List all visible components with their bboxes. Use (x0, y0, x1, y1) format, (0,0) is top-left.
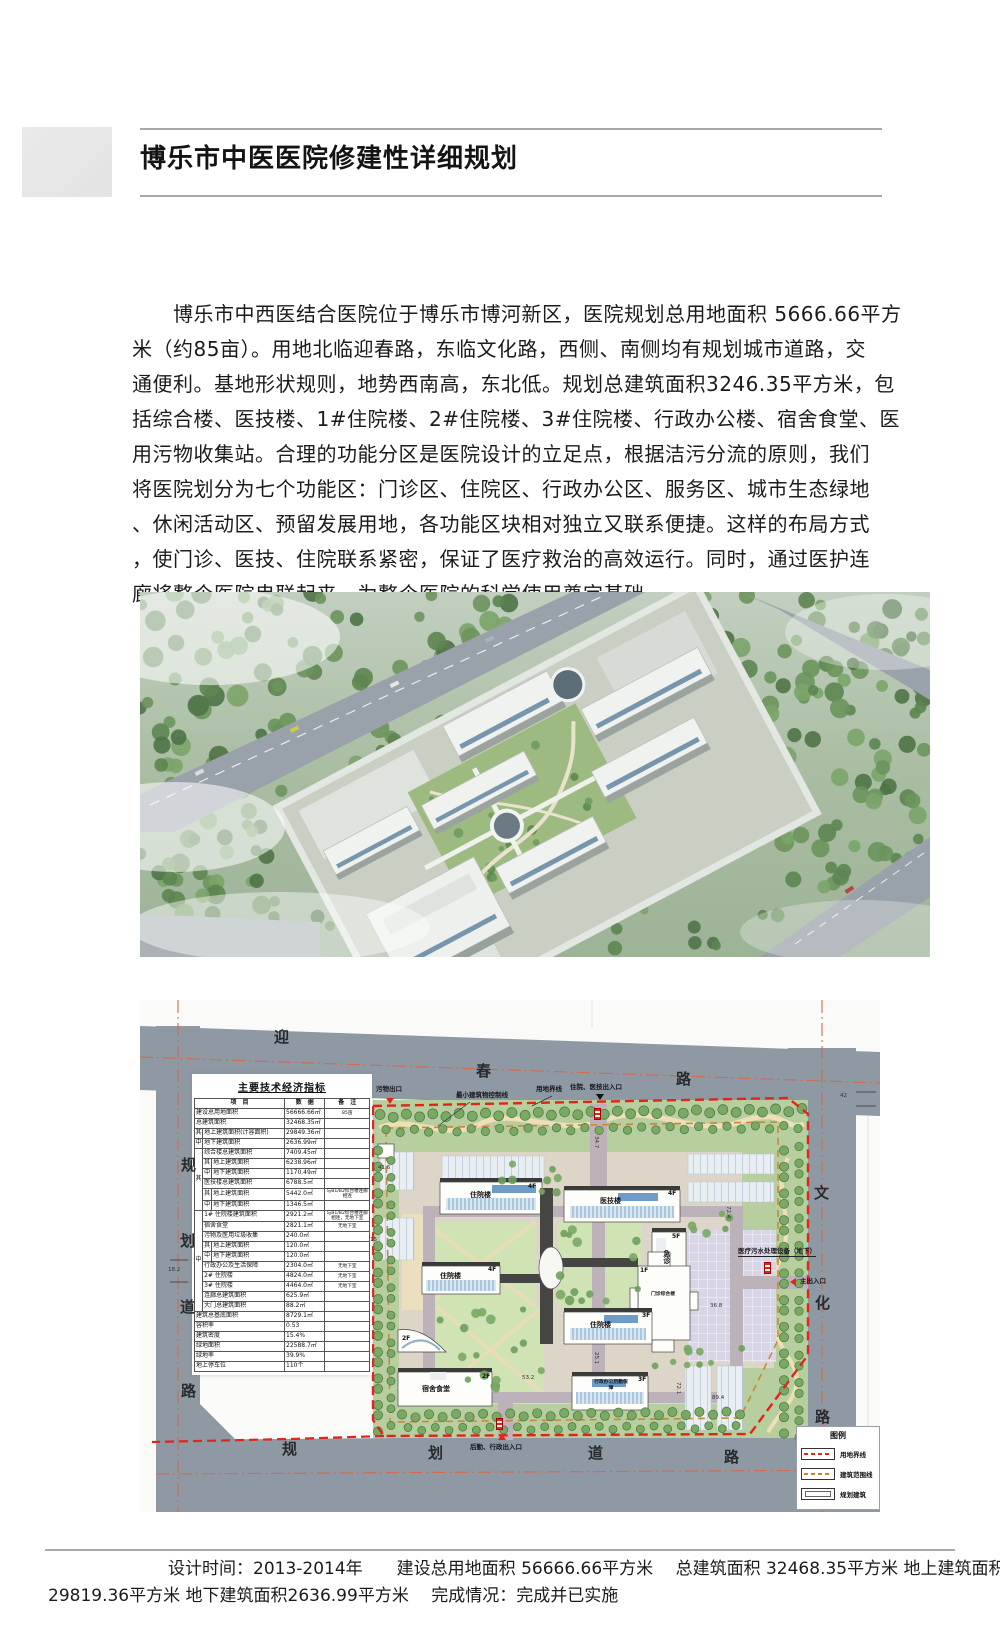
indicator-cell: 29849.36㎡ (285, 1129, 325, 1139)
indicator-cell (325, 1139, 370, 1149)
road-label-east: 文 (814, 1186, 829, 1201)
indicator-cell: 0.53 (285, 1322, 325, 1332)
indicator-cell: 3# 住院楼 (203, 1282, 285, 1292)
min-control-line-label: 最小建筑物控制线 (456, 1092, 508, 1099)
building-floor: 4F (488, 1267, 496, 1273)
ward-building-1 (440, 1178, 542, 1214)
intro-line: 将医院划分为七个功能区：门诊区、住院区、行政办公区、服务区、城市生态绿地 (132, 472, 877, 507)
dimension: 25.1 (593, 1352, 599, 1364)
dimension: 34.7 (593, 1136, 599, 1148)
road-label-south: 路 (724, 1450, 739, 1465)
aerial-rendering-image (140, 592, 930, 957)
indicator-cell: 6238.96㎡ (285, 1159, 325, 1169)
indicator-cell: 行政办公及生活保障 (203, 1262, 285, 1272)
main-entrance-arrow-icon (790, 1278, 796, 1286)
intro-line: 用污物收集站。合理的功能分区是医院设计的立足点，根据洁污分流的原则，我们 (132, 437, 877, 472)
road-label-north: 春 (476, 1064, 491, 1079)
north-gate-icon (594, 1108, 601, 1120)
indicator-cell: 医技楼总建筑面积 (203, 1179, 285, 1189)
legend-item: 用地界线 (801, 1444, 875, 1464)
indicator-cell: 6788.5㎡ (285, 1179, 325, 1189)
indicator-cell: 1346.5㎡ (285, 1200, 325, 1210)
indicator-cell: 2921.2㎡ (285, 1210, 325, 1222)
indicator-cell: 与B1/B2综合楼连廊相连，无地下室 (325, 1210, 370, 1222)
building-label: 住院楼 (440, 1273, 461, 1281)
road-label-west: 规 (181, 1158, 196, 1173)
indicator-cell (325, 1119, 370, 1129)
indicator-cell: 污物及医用垃圾收集 (203, 1232, 285, 1242)
indicator-cell: 32468.35㎡ (285, 1119, 325, 1129)
building-scope-swatch-icon (801, 1468, 835, 1480)
footer-line: 设计时间：2013-2014年 建设总用地面积 56666.66平方米 总建筑面… (48, 1556, 956, 1583)
legend-item-label: 用地界线 (840, 1449, 866, 1459)
indicator-cell: 中 (203, 1252, 212, 1262)
indicator-cell (325, 1322, 370, 1332)
footer: 设计时间：2013-2014年 建设总用地面积 56666.66平方米 总建筑面… (48, 1556, 956, 1610)
indicator-cell: 建设总用地面积 (195, 1109, 285, 1119)
building-label: 住院楼 (470, 1192, 491, 1200)
indicator-cell: 2304.0㎡ (285, 1262, 325, 1272)
indicator-cell (325, 1292, 370, 1302)
intro-paragraph: 博乐市中西医结合医院位于博乐市博河新区，医院规划总用地面积 5666.66平方 … (132, 297, 877, 612)
road-label-north: 迎 (274, 1030, 289, 1045)
indicator-cell (325, 1242, 370, 1252)
indicator-cell (325, 1179, 370, 1189)
indicator-cell: 中 (195, 1139, 203, 1149)
building-floor: 1F (640, 1268, 648, 1274)
intro-line: 通便利。基地形状规则，地势西南高，东北低。规划总建筑面积3246.35平方米，包 (132, 367, 877, 402)
indicator-cell: 大门总建筑面积 (203, 1302, 285, 1312)
indicator-cell (325, 1342, 370, 1352)
title-rule-bottom (140, 195, 882, 197)
building-floor: 3F (642, 1313, 650, 1319)
east-gate-icon (764, 1262, 771, 1274)
indicator-cell (325, 1332, 370, 1342)
waste-exit-arrow-icon (386, 1098, 394, 1104)
road-label-south: 划 (428, 1446, 443, 1461)
road-label-east: 路 (815, 1410, 830, 1425)
indicator-cell: 120.0㎡ (285, 1242, 325, 1252)
building-floor: 4F (528, 1184, 536, 1190)
waste-exit-label: 污物出口 (376, 1086, 402, 1093)
indicator-cell: 地下建筑面积 (203, 1139, 285, 1149)
intro-line: 、休闲活动区、预留发展用地，各功能区块相对独立又联系便捷。这样的布局方式 (132, 507, 877, 542)
road-label-west: 路 (181, 1384, 196, 1399)
indicator-cell: 625.9㎡ (285, 1292, 325, 1302)
indicator-cell: 绿地率 (195, 1352, 285, 1362)
indicator-header-cell: 备 注 (325, 1099, 370, 1109)
indicator-cell: 85亩 (325, 1109, 370, 1119)
indicator-cell: 无地下室 (325, 1272, 370, 1282)
road-label-north: 路 (676, 1072, 691, 1087)
intro-line: 博乐市中西医结合医院位于博乐市博河新区，医院规划总用地面积 5666.66平方 (132, 297, 877, 332)
planned-building-swatch-icon (801, 1488, 835, 1500)
footer-rule (45, 1549, 955, 1551)
intro-line: ，使门诊、医技、住院联系紧密，保证了医疗救治的高效运行。同时，通过医护连 (132, 542, 877, 577)
road-label-east: 化 (815, 1296, 830, 1311)
legend: 图例 用地界线 建筑范围线 规划建筑 (796, 1426, 880, 1510)
indicator-cell: 8729.1㎡ (285, 1312, 325, 1322)
legend-item: 规划建筑 (801, 1484, 875, 1504)
dimension: 18.2 (168, 1268, 180, 1274)
indicator-cell: 地上停车位 (195, 1362, 285, 1372)
indicator-cell (325, 1169, 370, 1179)
indicator-cell: 建筑总基底面积 (195, 1312, 285, 1322)
indicator-cell: 5442.0㎡ (285, 1189, 325, 1201)
sewage-treatment-label: 医疗污水处理设备（地下） (738, 1248, 816, 1257)
indicator-cell: 其 (195, 1129, 203, 1139)
indicators-table: 项 目数 据备 注建设总用地面积56666.66㎡85亩总建筑面积32468.3… (194, 1098, 370, 1372)
road-label-west: 划 (180, 1234, 195, 1249)
indicator-cell: 1# 住院楼建筑面积 (203, 1210, 285, 1222)
dimension: 72.1 (675, 1382, 681, 1394)
indicator-cell: 22588.7㎡ (285, 1342, 325, 1352)
indicator-header-cell: 数 据 (285, 1099, 325, 1109)
indicator-cell: 其 (203, 1189, 212, 1201)
building-floor: 5F (672, 1234, 680, 1240)
indicator-cell: 其 (203, 1159, 212, 1169)
dimension: 89.4 (712, 1396, 724, 1402)
indicator-cell: 无地下室 (325, 1262, 370, 1272)
legend-item-label: 建筑范围线 (840, 1469, 873, 1479)
indicator-cell: 中 (203, 1169, 212, 1179)
indicators-title: 主要技术经济指标 (194, 1079, 370, 1094)
legend-title: 图例 (801, 1430, 875, 1441)
indicator-cell: 110个 (285, 1362, 325, 1372)
indicator-cell: 88.2㎡ (285, 1302, 325, 1312)
indicator-cell: 其 (203, 1242, 212, 1252)
indicator-header-cell: 项 目 (195, 1099, 285, 1109)
indicator-cell: 2821.1㎡ (285, 1222, 325, 1232)
building-label: 门诊综合楼 (648, 1292, 678, 1298)
indicator-cell (325, 1232, 370, 1242)
indicator-cell: 15.4% (285, 1332, 325, 1342)
site-plan: 主要技术经济指标 项 目数 据备 注建设总用地面积56666.66㎡85亩总建筑… (140, 1000, 880, 1512)
title-rule-top (140, 128, 882, 130)
indicator-cell: 总建筑面积 (195, 1119, 285, 1129)
indicator-cell: 宿舍食堂 (203, 1222, 285, 1232)
building-label: 行政办公后勤保障 (592, 1380, 630, 1392)
building-floor: 2F (482, 1374, 490, 1380)
corner-gray-box (22, 127, 112, 197)
indicator-cell: 2636.99㎡ (285, 1139, 325, 1149)
indicator-cell: 120.0㎡ (285, 1252, 325, 1262)
indicator-cell (325, 1302, 370, 1312)
logistics-entrance-label: 后勤、行政出入口 (470, 1444, 522, 1451)
main-entrance-label: 主出入口 (800, 1278, 826, 1285)
indicator-cell (325, 1129, 370, 1139)
indicator-cell (325, 1352, 370, 1362)
building-floor: 2F (402, 1336, 410, 1342)
indicator-cell: 地下建筑面积 (212, 1169, 285, 1179)
indicator-cell: 39.9% (285, 1352, 325, 1362)
road-label-west: 道 (180, 1300, 195, 1315)
indicator-cell: 中 (203, 1200, 212, 1210)
legend-item: 建筑范围线 (801, 1464, 875, 1484)
inpatient-entrance-arrow-icon (596, 1094, 604, 1100)
indicators-panel: 主要技术经济指标 项 目数 据备 注建设总用地面积56666.66㎡85亩总建筑… (192, 1074, 372, 1375)
indicator-cell (325, 1200, 370, 1210)
indicator-cell: 无地下室 (325, 1282, 370, 1292)
indicator-cell: 地上建筑面积(计容面积) (203, 1129, 285, 1139)
dimension: 42 (840, 1094, 847, 1100)
footer-line: 29819.36平方米 地下建筑面积2636.99平方米 完成情况：完成并已实施 (48, 1583, 956, 1610)
building-floor: 3F (638, 1377, 646, 1383)
indicator-cell: 1170.49㎡ (285, 1169, 325, 1179)
indicator-cell: 240.0㎡ (285, 1232, 325, 1242)
indicator-cell (325, 1312, 370, 1322)
indicator-cell: 绿地面积 (195, 1342, 285, 1352)
dimension: 72.4 (725, 1206, 731, 1218)
indicator-cell: 地下建筑面积 (212, 1252, 285, 1262)
indicator-cell: 地上建筑面积 (212, 1189, 285, 1201)
road-label-south: 规 (282, 1442, 297, 1457)
intro-line: 米（约85亩）。用地北临迎春路，东临文化路，西侧、南侧均有规划城市道路，交 (132, 332, 877, 367)
indicator-cell: 无地下室 (325, 1222, 370, 1232)
indicator-cell (325, 1149, 370, 1159)
inpatient-entrance-label: 住院、医技出入口 (570, 1084, 622, 1091)
document-page: 博乐市中医医院修建性详细规划 博乐市中西医结合医院位于博乐市博河新区，医院规划总… (0, 0, 1000, 1625)
legend-item-label: 规划建筑 (840, 1489, 866, 1499)
indicator-cell: 4464.0㎡ (285, 1282, 325, 1292)
building-label: 医技楼 (600, 1198, 621, 1206)
indicator-cell (325, 1362, 370, 1372)
indicator-cell: 4824.0㎡ (285, 1272, 325, 1282)
road-label-south: 道 (588, 1446, 603, 1461)
land-boundary-label: 用地界线 (536, 1086, 562, 1093)
indicator-cell: 2# 住院楼 (203, 1272, 285, 1282)
building-label: 急诊 (662, 1250, 670, 1264)
indicator-cell: 连廊总建筑面积 (203, 1292, 285, 1302)
building-label: 宿舍食堂 (422, 1386, 450, 1394)
indicator-cell (325, 1252, 370, 1262)
indicator-cell: 与B1/B2综合楼连廊相连 (325, 1189, 370, 1201)
logistics-entrance-arrow-icon (498, 1434, 506, 1440)
indicator-cell: 容积率 (195, 1322, 285, 1332)
dimension: 41.6 (378, 1166, 390, 1172)
indicator-cell: 56666.66㎡ (285, 1109, 325, 1119)
indicator-cell: 7409.45㎡ (285, 1149, 325, 1159)
land-boundary-swatch-icon (801, 1448, 835, 1460)
indicator-cell: 地上建筑面积 (212, 1242, 285, 1252)
building-floor: 4F (668, 1191, 676, 1197)
indicator-cell (325, 1159, 370, 1169)
indicator-cell: 地下建筑面积 (212, 1200, 285, 1210)
dimension: 53.2 (522, 1376, 534, 1382)
south-gate-icon (496, 1418, 503, 1430)
oval-plaza (539, 1247, 563, 1289)
indicator-cell: 地上建筑面积 (212, 1159, 285, 1169)
indicator-cell: 综合楼总建筑面积 (203, 1149, 285, 1159)
indicator-cell: 中 (195, 1210, 203, 1312)
indicator-cell: 建筑密度 (195, 1332, 285, 1342)
medical-tech-building (564, 1186, 680, 1222)
building-label: 住院楼 (590, 1322, 611, 1330)
dimension: 36.8 (710, 1304, 722, 1310)
dimension: 15 (370, 1238, 377, 1244)
intro-line: 括综合楼、医技楼、1#住院楼、2#住院楼、3#住院楼、行政办公楼、宿舍食堂、医 (132, 402, 877, 437)
page-title: 博乐市中医医院修建性详细规划 (140, 138, 882, 175)
